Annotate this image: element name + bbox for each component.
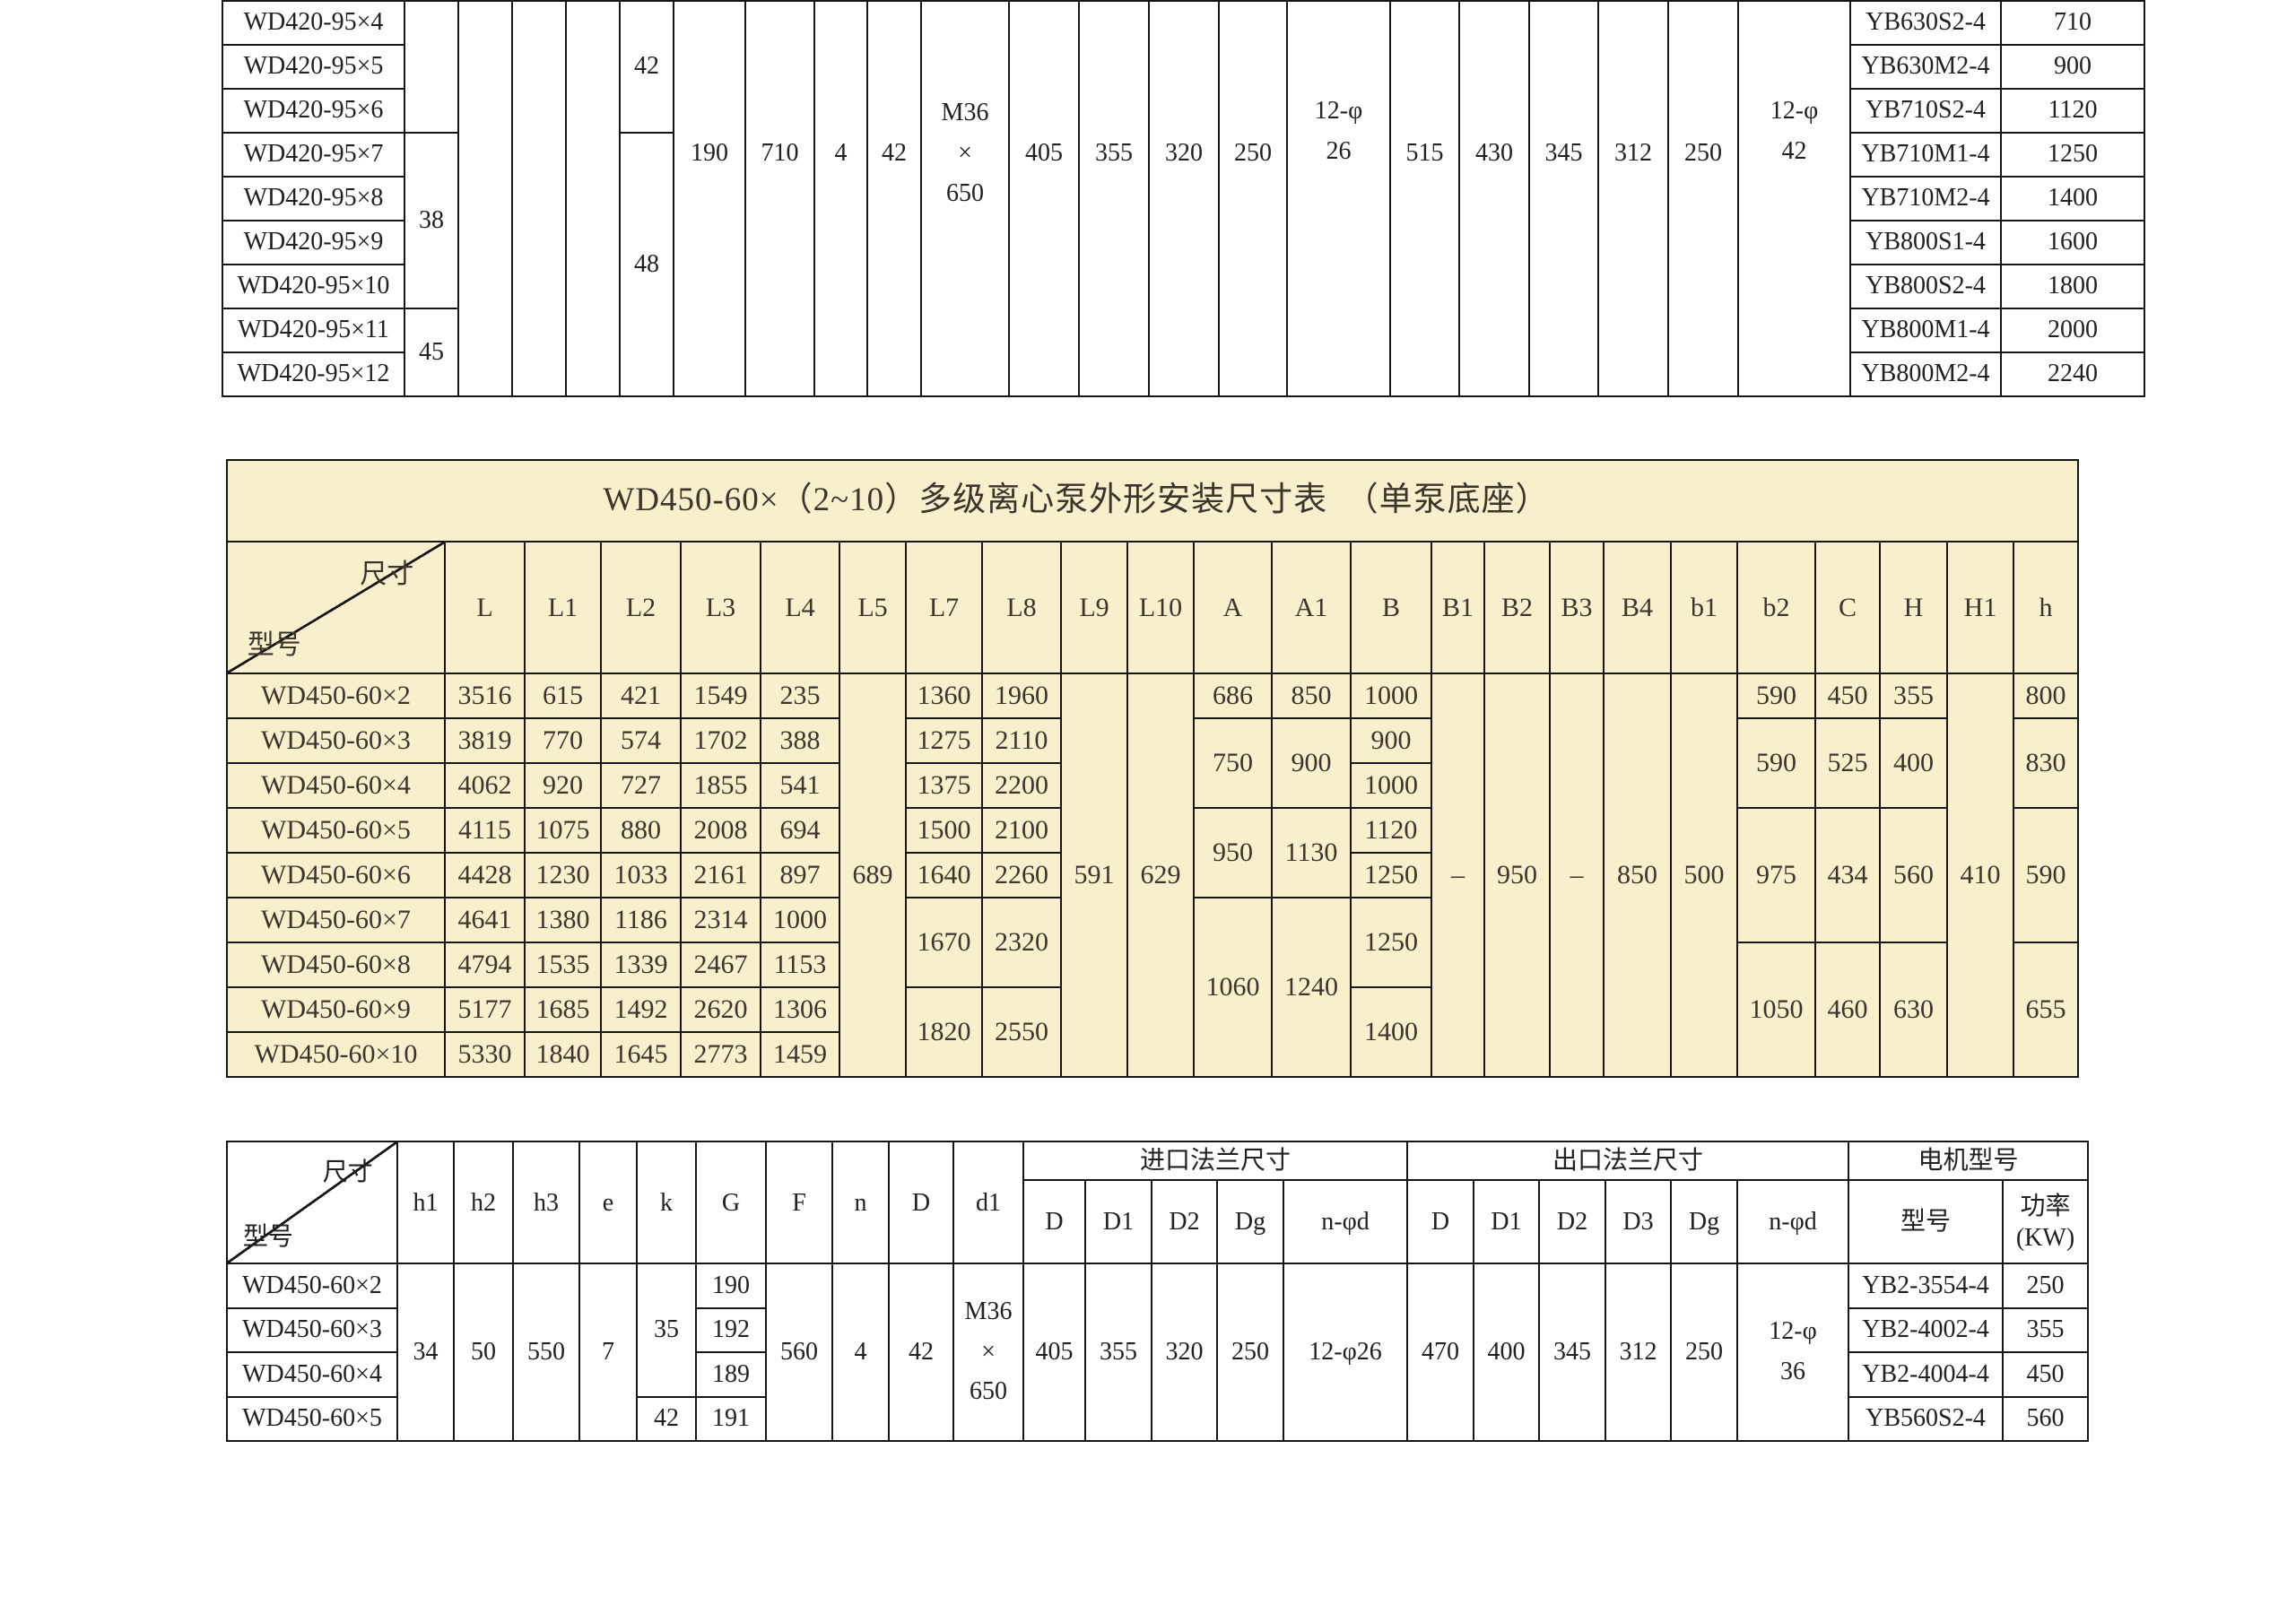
table-cell: 355 bbox=[1079, 1, 1149, 396]
table-cell: 897 bbox=[761, 853, 839, 898]
outlet-flange-group-header: 出口法兰尺寸 bbox=[1407, 1141, 1848, 1180]
motor-model-cell: YB630S2-4 bbox=[1850, 1, 2001, 45]
table-cell: 1685 bbox=[525, 987, 601, 1032]
model-cell: WD420-95×11 bbox=[222, 308, 404, 352]
table-cell: 1855 bbox=[681, 763, 761, 808]
table-cell: M36 × 650 bbox=[953, 1263, 1023, 1441]
motor-power-cell: 560 bbox=[2003, 1397, 2088, 1441]
table-cell: C bbox=[1815, 542, 1880, 673]
table-cell: G bbox=[696, 1141, 766, 1263]
table-cell: 850 bbox=[1604, 673, 1671, 1077]
table-cell: 770 bbox=[525, 718, 601, 763]
table-cell: 830 bbox=[2013, 718, 2078, 808]
table-cell: 355 bbox=[1085, 1263, 1152, 1441]
wd420-95-dimension-table: WD420-95×442190710442M36 × 6504053553202… bbox=[222, 0, 2145, 397]
table-cell: 430 bbox=[1459, 1, 1529, 396]
document-page: WD420-95×442190710442M36 × 6504053553202… bbox=[0, 0, 2296, 1623]
table-cell: 689 bbox=[839, 673, 906, 1077]
motor-model-cell: YB2-4004-4 bbox=[1848, 1352, 2003, 1397]
table-cell: 1820 bbox=[906, 987, 982, 1077]
motor-model-cell: YB2-4002-4 bbox=[1848, 1308, 2003, 1352]
model-cell: WD450-60×4 bbox=[227, 1352, 397, 1397]
wd450-60-dimension-table: WD450-60×（2~10）多级离心泵外形安装尺寸表 （单泵底座）尺寸型号LL… bbox=[226, 459, 2079, 1078]
table-cell: 710 bbox=[745, 1, 814, 396]
model-cell: WD450-60×9 bbox=[227, 987, 445, 1032]
table-cell: 5330 bbox=[445, 1032, 525, 1077]
motor-model-cell: YB710M2-4 bbox=[1850, 177, 2001, 221]
motor-power-cell: 450 bbox=[2003, 1352, 2088, 1397]
table-cell: 320 bbox=[1149, 1, 1219, 396]
table-cell: 1500 bbox=[906, 808, 982, 853]
table-cell: 1153 bbox=[761, 942, 839, 987]
table-cell: B1 bbox=[1431, 542, 1484, 673]
table-cell: M36 × 650 bbox=[921, 1, 1009, 396]
table-cell: 560 bbox=[766, 1263, 832, 1441]
table-cell: 1306 bbox=[761, 987, 839, 1032]
table-cell: F bbox=[766, 1141, 832, 1263]
motor-model-cell: YB800S2-4 bbox=[1850, 265, 2001, 308]
model-cell: WD450-60×2 bbox=[227, 1263, 397, 1308]
table-cell: 12-φ 26 bbox=[1287, 1, 1390, 396]
table-cell: 42 bbox=[637, 1397, 696, 1441]
table-cell: 694 bbox=[761, 808, 839, 853]
table-cell: 2110 bbox=[982, 718, 1061, 763]
table-cell: b1 bbox=[1671, 542, 1737, 673]
model-cell: WD420-95×12 bbox=[222, 352, 404, 396]
table-cell: 2620 bbox=[681, 987, 761, 1032]
table-cell: 2100 bbox=[982, 808, 1061, 853]
table-cell: 2260 bbox=[982, 853, 1061, 898]
table-cell: 45 bbox=[404, 308, 458, 396]
diagonal-label-model: 型号 bbox=[243, 1221, 293, 1253]
table-cell: 920 bbox=[525, 763, 601, 808]
table-cell: 312 bbox=[1598, 1, 1668, 396]
table-cell: 12-φ26 bbox=[1283, 1263, 1407, 1441]
table-cell: 1400 bbox=[1351, 987, 1431, 1077]
motor-power-cell: 355 bbox=[2003, 1308, 2088, 1352]
table-cell: H bbox=[1880, 542, 1947, 673]
table-cell: 1492 bbox=[601, 987, 681, 1032]
motor-power-cell: 1250 bbox=[2001, 133, 2144, 177]
model-cell: WD450-60×5 bbox=[227, 1397, 397, 1441]
table-cell: k bbox=[637, 1141, 696, 1263]
table-cell: 1000 bbox=[761, 898, 839, 942]
motor-model-cell: YB800M2-4 bbox=[1850, 352, 2001, 396]
table-cell: 250 bbox=[1217, 1263, 1283, 1441]
diagonal-header-cell: 尺寸型号 bbox=[227, 542, 445, 673]
motor-power-cell: 2000 bbox=[2001, 308, 2144, 352]
table-cell: 1050 bbox=[1737, 942, 1815, 1077]
table-cell: 400 bbox=[1474, 1263, 1539, 1441]
table-cell: 3819 bbox=[445, 718, 525, 763]
table-cell: L5 bbox=[839, 542, 906, 673]
table-row: WD450-60×23450550735190560442M36 × 65040… bbox=[227, 1263, 2088, 1308]
table-cell: 4 bbox=[832, 1263, 889, 1441]
table-cell: 2550 bbox=[982, 987, 1061, 1077]
table-cell: A1 bbox=[1272, 542, 1351, 673]
motor-model-cell: YB630M2-4 bbox=[1850, 45, 2001, 89]
table-cell: – bbox=[1550, 673, 1604, 1077]
table-cell: 400 bbox=[1880, 718, 1947, 808]
table-cell: e bbox=[579, 1141, 637, 1263]
model-cell: WD420-95×5 bbox=[222, 45, 404, 89]
motor-model-cell: YB710S2-4 bbox=[1850, 89, 2001, 133]
table-cell: 1459 bbox=[761, 1032, 839, 1077]
table-cell: 470 bbox=[1407, 1263, 1474, 1441]
model-cell: WD420-95×8 bbox=[222, 177, 404, 221]
table-cell: B3 bbox=[1550, 542, 1604, 673]
table-row: 尺寸型号h1h2h3ekGFnDd1进口法兰尺寸出口法兰尺寸电机型号 bbox=[227, 1141, 2088, 1180]
table-cell: L9 bbox=[1061, 542, 1127, 673]
table-cell: 1840 bbox=[525, 1032, 601, 1077]
table-cell: 515 bbox=[1390, 1, 1459, 396]
table-cell: 5177 bbox=[445, 987, 525, 1032]
table-cell: 450 bbox=[1815, 673, 1880, 718]
table-cell: 7 bbox=[579, 1263, 637, 1441]
table-cell: h1 bbox=[397, 1141, 454, 1263]
table-cell: 727 bbox=[601, 763, 681, 808]
wd450-60-flange-motor-table: 尺寸型号h1h2h3ekGFnDd1进口法兰尺寸出口法兰尺寸电机型号DD1D2D… bbox=[226, 1141, 2089, 1442]
motor-power-cell: 1120 bbox=[2001, 89, 2144, 133]
table-row: WD420-95×442190710442M36 × 6504053553202… bbox=[222, 1, 2144, 45]
table-cell: 900 bbox=[1272, 718, 1351, 808]
table-cell: 1060 bbox=[1194, 898, 1272, 1077]
table-title: WD450-60×（2~10）多级离心泵外形安装尺寸表 （单泵底座） bbox=[227, 460, 2078, 542]
diagonal-label-model: 型号 bbox=[248, 629, 301, 663]
table-row: WD450-60×2351661542115492356891360196059… bbox=[227, 673, 2078, 718]
table-cell: 1702 bbox=[681, 718, 761, 763]
table-cell: 1230 bbox=[525, 853, 601, 898]
model-cell: WD450-60×8 bbox=[227, 942, 445, 987]
table-cell: h3 bbox=[513, 1141, 579, 1263]
table-cell: 1960 bbox=[982, 673, 1061, 718]
table-cell: 574 bbox=[601, 718, 681, 763]
table-cell: 629 bbox=[1127, 673, 1194, 1077]
model-cell: WD420-95×7 bbox=[222, 133, 404, 177]
motor-model-cell: YB800S1-4 bbox=[1850, 221, 2001, 265]
table-cell: D1 bbox=[1085, 1180, 1152, 1263]
table-row: WD450-60×（2~10）多级离心泵外形安装尺寸表 （单泵底座） bbox=[227, 460, 2078, 542]
table-cell: h bbox=[2013, 542, 2078, 673]
table-cell: 4794 bbox=[445, 942, 525, 987]
table-cell: 38 bbox=[404, 133, 458, 308]
table-cell: 591 bbox=[1061, 673, 1127, 1077]
motor-power-cell: 1400 bbox=[2001, 177, 2144, 221]
table-cell: 235 bbox=[761, 673, 839, 718]
table-cell: 975 bbox=[1737, 808, 1815, 942]
table-cell: 345 bbox=[1529, 1, 1598, 396]
table-cell: 250 bbox=[1671, 1263, 1737, 1441]
table-cell: 1549 bbox=[681, 673, 761, 718]
table-cell: 950 bbox=[1194, 808, 1272, 898]
table-cell: 4115 bbox=[445, 808, 525, 853]
table-cell: 590 bbox=[2013, 808, 2078, 942]
table-cell: 312 bbox=[1605, 1263, 1671, 1441]
motor-model-cell: YB710M1-4 bbox=[1850, 133, 2001, 177]
table-cell: 1250 bbox=[1351, 898, 1431, 987]
table-cell: 4641 bbox=[445, 898, 525, 942]
table-cell: 2008 bbox=[681, 808, 761, 853]
model-cell: WD420-95×6 bbox=[222, 89, 404, 133]
table-cell: 35 bbox=[637, 1263, 696, 1397]
table-cell: 630 bbox=[1880, 942, 1947, 1077]
table-cell bbox=[566, 1, 620, 396]
motor-power-cell: 250 bbox=[2003, 1263, 2088, 1308]
model-cell: WD450-60×4 bbox=[227, 763, 445, 808]
table-cell: L8 bbox=[982, 542, 1061, 673]
table-cell: n-φd bbox=[1737, 1180, 1848, 1263]
table-cell: 1640 bbox=[906, 853, 982, 898]
table-cell: 42 bbox=[889, 1263, 953, 1441]
table-cell: 189 bbox=[696, 1352, 766, 1397]
table-cell: 850 bbox=[1272, 673, 1351, 718]
table-cell: 590 bbox=[1737, 673, 1815, 718]
table-cell: 1645 bbox=[601, 1032, 681, 1077]
table-cell: 191 bbox=[696, 1397, 766, 1441]
table-cell: 34 bbox=[397, 1263, 454, 1441]
table-cell: D2 bbox=[1539, 1180, 1605, 1263]
diagonal-header-cell: 尺寸型号 bbox=[227, 1141, 397, 1263]
table-cell: 421 bbox=[601, 673, 681, 718]
table-cell: 48 bbox=[620, 133, 674, 396]
motor-model-cell: YB800M1-4 bbox=[1850, 308, 2001, 352]
table-cell: 2200 bbox=[982, 763, 1061, 808]
table-cell: 655 bbox=[2013, 942, 2078, 1077]
table-cell: D3 bbox=[1605, 1180, 1671, 1263]
diagonal-label-size: 尺寸 bbox=[360, 558, 413, 592]
table-cell: Dg bbox=[1217, 1180, 1283, 1263]
table-cell: b2 bbox=[1737, 542, 1815, 673]
table-cell: L7 bbox=[906, 542, 982, 673]
table-cell bbox=[458, 1, 512, 396]
table-cell: H1 bbox=[1947, 542, 2013, 673]
model-cell: WD450-60×3 bbox=[227, 718, 445, 763]
table-cell: 1380 bbox=[525, 898, 601, 942]
table-cell: 1240 bbox=[1272, 898, 1351, 1077]
model-cell: WD450-60×5 bbox=[227, 808, 445, 853]
table-cell: 250 bbox=[1668, 1, 1738, 396]
table-cell: 800 bbox=[2013, 673, 2078, 718]
table-cell: 686 bbox=[1194, 673, 1272, 718]
table-cell: – bbox=[1431, 673, 1484, 1077]
model-cell: WD450-60×6 bbox=[227, 853, 445, 898]
table-cell: 4428 bbox=[445, 853, 525, 898]
motor-power-cell: 710 bbox=[2001, 1, 2144, 45]
table-cell: 950 bbox=[1484, 673, 1550, 1077]
table-cell: 12-φ 36 bbox=[1737, 1263, 1848, 1441]
table-cell bbox=[512, 1, 566, 396]
table-cell: 1250 bbox=[1351, 853, 1431, 898]
motor-power-cell: 1600 bbox=[2001, 221, 2144, 265]
table-cell: B2 bbox=[1484, 542, 1550, 673]
table-cell: h2 bbox=[454, 1141, 513, 1263]
table-cell: 功率 (KW) bbox=[2003, 1180, 2088, 1263]
table-cell: d1 bbox=[953, 1141, 1023, 1263]
table-cell: 50 bbox=[454, 1263, 513, 1441]
model-cell: WD420-95×9 bbox=[222, 221, 404, 265]
table-cell: 2773 bbox=[681, 1032, 761, 1077]
table-cell: 590 bbox=[1737, 718, 1815, 808]
model-cell: WD420-95×10 bbox=[222, 265, 404, 308]
table-cell: 2314 bbox=[681, 898, 761, 942]
table-cell: B4 bbox=[1604, 542, 1671, 673]
table-cell: D bbox=[1407, 1180, 1474, 1263]
table-cell: A bbox=[1194, 542, 1272, 673]
table-cell: 1033 bbox=[601, 853, 681, 898]
table-cell: 1120 bbox=[1351, 808, 1431, 853]
model-cell: WD450-60×10 bbox=[227, 1032, 445, 1077]
table-cell: 900 bbox=[1351, 718, 1431, 763]
table-cell: L4 bbox=[761, 542, 839, 673]
table-cell: n-φd bbox=[1283, 1180, 1407, 1263]
table-cell: 460 bbox=[1815, 942, 1880, 1077]
table-cell: L bbox=[445, 542, 525, 673]
motor-power-cell: 1800 bbox=[2001, 265, 2144, 308]
table-cell: 12-φ 42 bbox=[1738, 1, 1850, 396]
table-cell: L3 bbox=[681, 542, 761, 673]
table-cell: 500 bbox=[1671, 673, 1737, 1077]
table-cell: D bbox=[1023, 1180, 1085, 1263]
table-cell: 4 bbox=[814, 1, 867, 396]
table-cell bbox=[404, 1, 458, 133]
table-cell: 1186 bbox=[601, 898, 681, 942]
table-cell: 345 bbox=[1539, 1263, 1605, 1441]
table-cell: 405 bbox=[1009, 1, 1079, 396]
table-cell: 880 bbox=[601, 808, 681, 853]
table-cell: 1360 bbox=[906, 673, 982, 718]
table-cell: D1 bbox=[1474, 1180, 1539, 1263]
model-cell: WD450-60×2 bbox=[227, 673, 445, 718]
table-cell: 190 bbox=[674, 1, 745, 396]
table-cell: 1375 bbox=[906, 763, 982, 808]
table-cell: 4062 bbox=[445, 763, 525, 808]
table-cell: 1535 bbox=[525, 942, 601, 987]
table-cell: 42 bbox=[620, 1, 674, 133]
table-cell: 410 bbox=[1947, 673, 2013, 1077]
table-cell: 190 bbox=[696, 1263, 766, 1308]
diagonal-label-size: 尺寸 bbox=[323, 1157, 373, 1188]
table-cell: 541 bbox=[761, 763, 839, 808]
table-cell: 1339 bbox=[601, 942, 681, 987]
inlet-flange-group-header: 进口法兰尺寸 bbox=[1023, 1141, 1407, 1180]
table-cell: 2320 bbox=[982, 898, 1061, 987]
table-cell: 2161 bbox=[681, 853, 761, 898]
table-cell: D2 bbox=[1152, 1180, 1217, 1263]
table-cell: 355 bbox=[1880, 673, 1947, 718]
table-cell: L2 bbox=[601, 542, 681, 673]
table-cell: 560 bbox=[1880, 808, 1947, 942]
table-cell: 42 bbox=[867, 1, 921, 396]
table-cell: 525 bbox=[1815, 718, 1880, 808]
table-row: 尺寸型号LL1L2L3L4L5L7L8L9L10AA1BB1B2B3B4b1b2… bbox=[227, 542, 2078, 673]
table-cell: 405 bbox=[1023, 1263, 1085, 1441]
motor-power-cell: 2240 bbox=[2001, 352, 2144, 396]
table-cell: L10 bbox=[1127, 542, 1194, 673]
model-cell: WD450-60×7 bbox=[227, 898, 445, 942]
model-cell: WD420-95×4 bbox=[222, 1, 404, 45]
table-cell: 320 bbox=[1152, 1263, 1217, 1441]
table-cell: B bbox=[1351, 542, 1431, 673]
motor-model-cell: YB2-3554-4 bbox=[1848, 1263, 2003, 1308]
motor-model-cell: YB560S2-4 bbox=[1848, 1397, 2003, 1441]
table-cell: n bbox=[832, 1141, 889, 1263]
table-cell: 388 bbox=[761, 718, 839, 763]
table-cell: D bbox=[889, 1141, 953, 1263]
table-cell: 1275 bbox=[906, 718, 982, 763]
motor-group-header: 电机型号 bbox=[1848, 1141, 2088, 1180]
table-cell: 型号 bbox=[1848, 1180, 2003, 1263]
table-cell: 250 bbox=[1219, 1, 1287, 396]
table-cell: 1000 bbox=[1351, 673, 1431, 718]
motor-power-cell: 900 bbox=[2001, 45, 2144, 89]
table-cell: 1000 bbox=[1351, 763, 1431, 808]
table-cell: Dg bbox=[1671, 1180, 1737, 1263]
table-cell: 750 bbox=[1194, 718, 1272, 808]
table-cell: 550 bbox=[513, 1263, 579, 1441]
table-cell: 2467 bbox=[681, 942, 761, 987]
table-cell: 1075 bbox=[525, 808, 601, 853]
table-cell: 1130 bbox=[1272, 808, 1351, 898]
table-cell: 3516 bbox=[445, 673, 525, 718]
model-cell: WD450-60×3 bbox=[227, 1308, 397, 1352]
table-cell: 192 bbox=[696, 1308, 766, 1352]
table-cell: L1 bbox=[525, 542, 601, 673]
table-cell: 1670 bbox=[906, 898, 982, 987]
table-cell: 615 bbox=[525, 673, 601, 718]
table-cell: 434 bbox=[1815, 808, 1880, 942]
